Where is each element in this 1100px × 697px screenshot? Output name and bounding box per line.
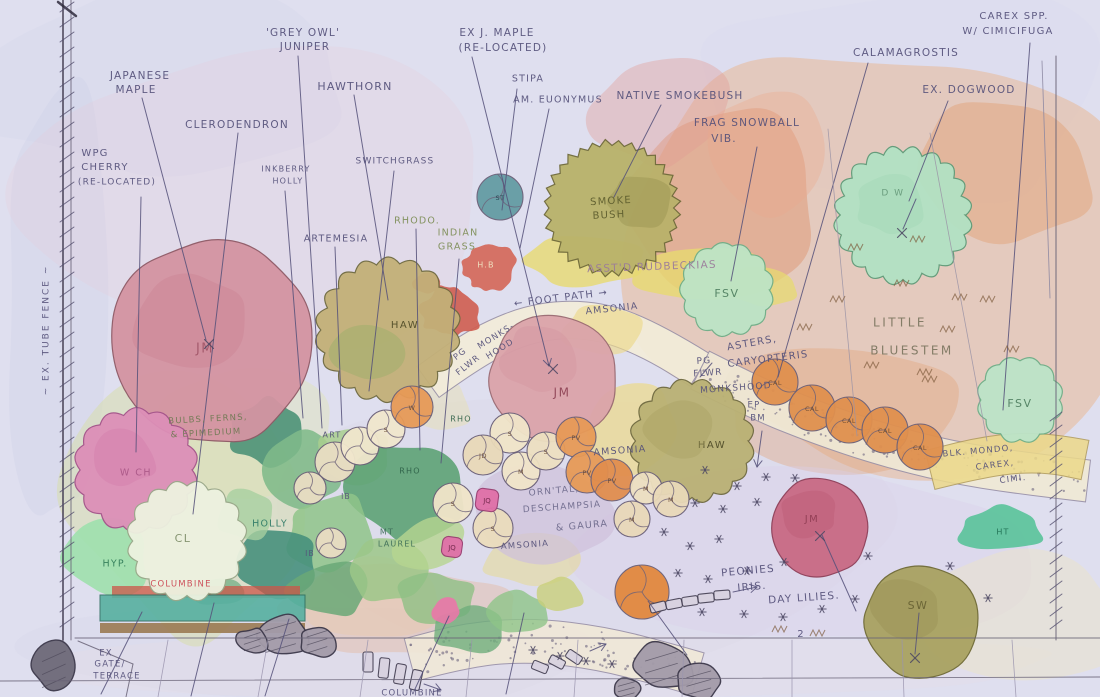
label-indian-grass: INDIAN — [438, 228, 479, 239]
svg-text:~ EX. TUBE FENCE ~: ~ EX. TUBE FENCE ~ — [42, 265, 52, 396]
svg-text:CAREX SPP.: CAREX SPP. — [979, 11, 1048, 22]
svg-text:INKBERRY: INKBERRY — [261, 165, 310, 174]
stipa-circle: ST — [477, 174, 523, 220]
jq-plant: JQ — [441, 536, 464, 559]
svg-text:BM: BM — [750, 414, 766, 424]
label-japanese-maple: MAPLE — [115, 84, 156, 96]
svg-text:RHODO.: RHODO. — [394, 216, 440, 227]
svg-text:ART: ART — [323, 431, 342, 440]
svg-text:(RE-LOCATED): (RE-LOCATED) — [459, 42, 548, 54]
label-art: ART — [323, 431, 342, 440]
label-columbine-red: COLUMBINE — [150, 580, 211, 590]
svg-text:M: M — [668, 496, 674, 504]
label-stipa: STIPA — [512, 74, 544, 85]
svg-text:AM. EUONYMUS: AM. EUONYMUS — [513, 95, 603, 106]
svg-text:JUNIPER: JUNIPER — [279, 41, 330, 53]
svg-text:CALAMAGROSTIS: CALAMAGROSTIS — [853, 47, 959, 59]
svg-text:NATIVE SMOKEBUSH: NATIVE SMOKEBUSH — [616, 90, 743, 102]
label-ht: HT — [996, 528, 1009, 537]
label-hb: H.B — [477, 261, 495, 270]
svg-text:IB: IB — [305, 549, 315, 558]
svg-text:EP: EP — [748, 401, 761, 411]
label-little-bluestem: BLUESTEM — [870, 344, 954, 358]
label-ib: IB — [305, 549, 315, 558]
label-wpg-cherry: (RE-LOCATED) — [78, 178, 156, 188]
plant-circle: M — [614, 501, 650, 537]
label-hyp: HYP. — [102, 559, 127, 570]
label-japanese-maple: JAPANESE — [109, 70, 170, 82]
label-mt-laurel: LAUREL — [378, 540, 416, 549]
plan-stone — [378, 658, 390, 679]
svg-text:SWITCHGRASS: SWITCHGRASS — [356, 157, 435, 167]
svg-text:MAPLE: MAPLE — [115, 84, 156, 96]
svg-text:HAWTHORN: HAWTHORN — [317, 80, 392, 93]
svg-text:LITTLE: LITTLE — [873, 316, 927, 330]
label-hawthorn: HAWTHORN — [317, 80, 392, 93]
svg-text:TERRACE: TERRACE — [92, 672, 140, 682]
svg-text:CAL: CAL — [913, 444, 927, 452]
plant-circle — [294, 472, 326, 504]
svg-text:JQ: JQ — [482, 497, 491, 505]
plant-circle: W — [391, 386, 433, 428]
svg-text:EX. DOGWOOD: EX. DOGWOOD — [922, 84, 1015, 96]
svg-text:CAL: CAL — [805, 405, 819, 413]
label-carex: CAREX SPP. — [979, 11, 1048, 22]
label-ex-gate: TERRACE — [92, 672, 140, 682]
svg-text:S: S — [451, 500, 456, 508]
svg-text:BLUESTEM: BLUESTEM — [870, 344, 954, 358]
svg-text:MT: MT — [380, 528, 394, 537]
jq-plant: JQ — [475, 488, 500, 513]
garden-plan-drawing: JMW CHCLHAWFSVD WJMHAWFSVJMSWSWSJDSSMSPV… — [0, 0, 1100, 697]
label-frag-snowball: VIB. — [711, 133, 737, 145]
label-ib: IB — [341, 492, 351, 501]
svg-text:CLERODENDRON: CLERODENDRON — [185, 119, 289, 131]
label-rho: RHO — [450, 415, 471, 424]
svg-text:SMOKE: SMOKE — [590, 195, 632, 208]
label-inkberry-holly: HOLLY — [272, 177, 303, 186]
label-ex-gate: EX — [99, 649, 113, 659]
svg-text:RHO: RHO — [399, 467, 420, 476]
svg-text:FSV: FSV — [714, 287, 739, 300]
label-columbine: COLUMBINE — [381, 689, 442, 697]
plan-stone — [681, 595, 698, 606]
svg-text:VIB.: VIB. — [711, 133, 737, 145]
label-rhodo: RHODO. — [394, 216, 440, 227]
svg-text:PV: PV — [571, 434, 580, 442]
label-artemesia: ARTEMESIA — [304, 234, 369, 245]
plant-circle: JD — [463, 435, 503, 475]
calamagrostis-circle: CAL — [897, 424, 943, 470]
svg-text:WPG: WPG — [81, 148, 108, 159]
svg-text:INDIAN: INDIAN — [438, 228, 479, 239]
label-grey-owl-juniper: JUNIPER — [279, 41, 330, 53]
svg-text:HOLLY: HOLLY — [252, 519, 288, 530]
label-peonies-iris: IRIS. — [737, 580, 767, 595]
svg-text:2: 2 — [797, 629, 805, 640]
svg-text:STIPA: STIPA — [512, 74, 544, 85]
svg-text:FLWR: FLWR — [693, 367, 723, 379]
label-ex-fence: ~ EX. TUBE FENCE ~ — [42, 265, 52, 396]
plant-circle: M — [653, 481, 689, 517]
svg-text:COLUMBINE: COLUMBINE — [381, 689, 442, 697]
plan-stone — [363, 652, 373, 672]
label-native-smokebush: NATIVE SMOKEBUSH — [616, 90, 743, 102]
svg-text:CHERRY: CHERRY — [81, 162, 128, 173]
label-wpg-cherry: WPG — [81, 148, 108, 159]
label-frag-snowball: FRAG SNOWBALL — [694, 117, 800, 129]
svg-text:JD: JD — [478, 452, 487, 460]
svg-text:ARTEMESIA: ARTEMESIA — [304, 234, 369, 245]
label-quantity: 2 — [797, 629, 805, 640]
svg-text:RHO: RHO — [450, 415, 471, 424]
label-pg-flwr-monkshood-2: PG — [696, 356, 711, 367]
svg-text:HAW: HAW — [391, 320, 419, 331]
svg-text:IRIS.: IRIS. — [737, 580, 767, 595]
svg-text:S: S — [491, 525, 496, 533]
label-holly: HOLLY — [252, 519, 288, 530]
label-mt-laurel: MT — [380, 528, 394, 537]
svg-text:IB: IB — [341, 492, 351, 501]
leader-am-euonymus — [520, 109, 549, 248]
svg-text:CAL: CAL — [878, 427, 892, 435]
label-wpg-cherry: CHERRY — [81, 162, 128, 173]
label-ep-bm: EP — [748, 401, 761, 411]
svg-text:HT: HT — [996, 528, 1009, 537]
svg-text:M: M — [643, 485, 649, 493]
label-ex-gate: GATE/ — [94, 660, 125, 670]
svg-text:PG: PG — [696, 356, 711, 367]
label-am-euonymus: AM. EUONYMUS — [513, 95, 603, 106]
svg-text:H.B: H.B — [477, 261, 495, 270]
svg-text:JAPANESE: JAPANESE — [109, 70, 170, 82]
svg-text:HOLLY: HOLLY — [272, 177, 303, 186]
svg-text:PV: PV — [607, 477, 616, 485]
svg-text:FSV: FSV — [1007, 397, 1032, 410]
label-grey-owl-juniper: 'GREY OWL' — [266, 27, 340, 39]
svg-text:CL: CL — [175, 532, 192, 545]
label-ex-j-maple: (RE-LOCATED) — [459, 42, 548, 54]
svg-text:LAUREL: LAUREL — [378, 540, 416, 549]
svg-text:S: S — [384, 426, 389, 434]
svg-text:FRAG SNOWBALL: FRAG SNOWBALL — [694, 117, 800, 129]
svg-text:COLUMBINE: COLUMBINE — [150, 580, 211, 590]
label-smoke-bush: BUSH — [592, 209, 625, 222]
svg-text:EX: EX — [99, 649, 113, 659]
label-little-bluestem: LITTLE — [873, 316, 927, 330]
svg-text:EX J. MAPLE: EX J. MAPLE — [459, 27, 534, 39]
svg-text:PV: PV — [582, 469, 591, 477]
svg-text:W: W — [409, 404, 416, 412]
boulder — [678, 663, 721, 697]
label-calamagrostis: CALAMAGROSTIS — [853, 47, 959, 59]
plant-circle: S — [433, 483, 473, 523]
svg-text:'GREY OWL': 'GREY OWL' — [266, 27, 340, 39]
svg-text:BUSH: BUSH — [592, 209, 625, 222]
label-carex: W/ CIMICIFUGA — [962, 26, 1053, 37]
label-ex-j-maple: EX J. MAPLE — [459, 27, 534, 39]
svg-text:HYP.: HYP. — [102, 559, 127, 570]
svg-text:M: M — [629, 516, 635, 524]
plant-circle — [316, 528, 346, 558]
label-ep-bm: BM — [750, 414, 766, 424]
svg-text:CAL: CAL — [842, 417, 856, 425]
label-indian-grass: GRASS — [438, 242, 476, 253]
label-inkberry-holly: INKBERRY — [261, 165, 310, 174]
label-smoke-bush: SMOKE — [590, 195, 632, 208]
plant-circle: PV — [591, 459, 633, 501]
shrub-fsv-2: FSV — [978, 358, 1063, 443]
label-rho: RHO — [399, 467, 420, 476]
svg-text:M: M — [518, 468, 524, 476]
svg-text:GATE/: GATE/ — [94, 660, 125, 670]
svg-text:GRASS: GRASS — [438, 242, 476, 253]
label-clerodendron: CLERODENDRON — [185, 119, 289, 131]
svg-text:S: S — [544, 448, 549, 456]
svg-text:(RE-LOCATED): (RE-LOCATED) — [78, 178, 156, 188]
svg-text:W/ CIMICIFUGA: W/ CIMICIFUGA — [962, 26, 1053, 37]
plan-stone — [698, 593, 715, 604]
svg-text:S: S — [508, 430, 513, 438]
label-switchgrass: SWITCHGRASS — [356, 157, 435, 167]
label-pg-flwr-monkshood-2: FLWR — [693, 367, 723, 379]
label-ex-dogwood: EX. DOGWOOD — [922, 84, 1015, 96]
svg-text:JQ: JQ — [447, 544, 456, 552]
scanned-garden-plan: JMW CHCLHAWFSVD WJMHAWFSVJMSWSWSJDSSMSPV… — [0, 0, 1100, 697]
plan-stone — [714, 590, 731, 600]
